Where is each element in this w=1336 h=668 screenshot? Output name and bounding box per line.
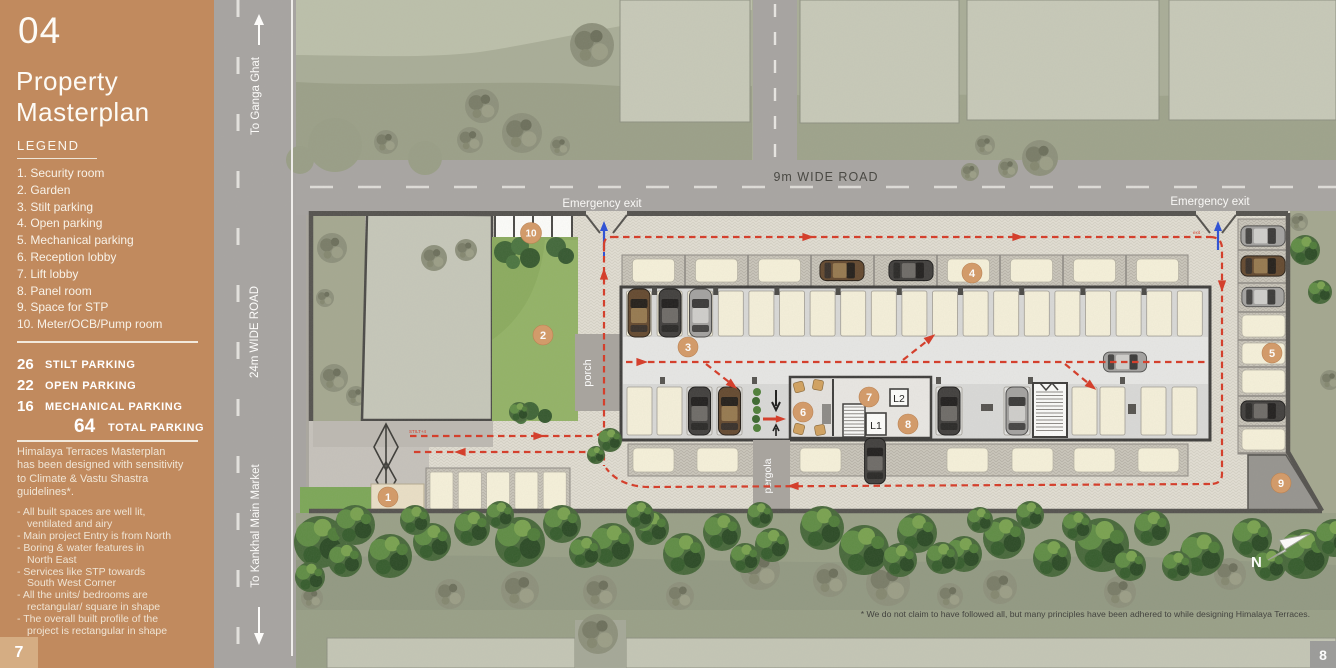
svg-text:24m WIDE ROAD: 24m WIDE ROAD	[249, 286, 261, 378]
svg-text:To Kankhal Main Market: To Kankhal Main Market	[250, 464, 262, 588]
svg-text:To Ganga Ghat: To Ganga Ghat	[250, 56, 262, 135]
